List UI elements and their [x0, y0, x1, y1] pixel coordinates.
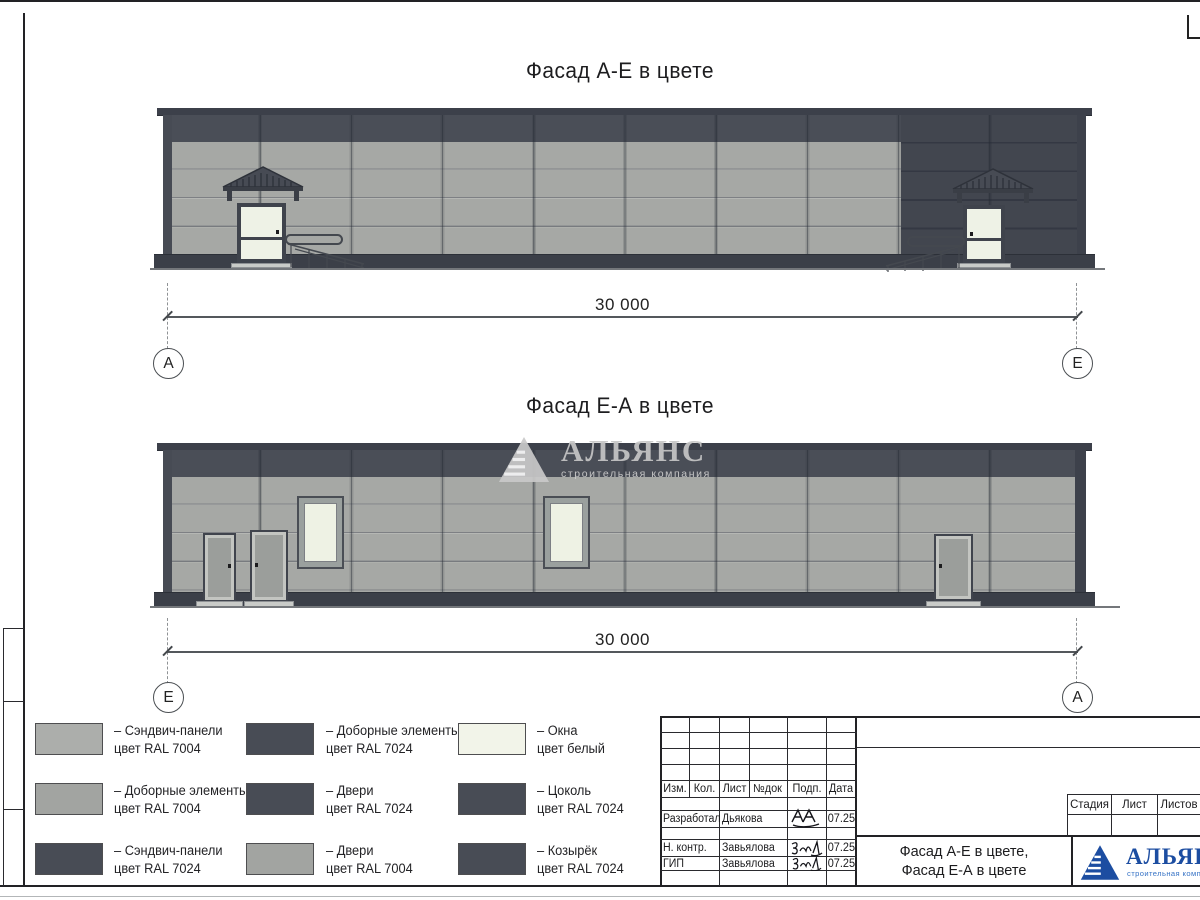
logo-pyramid-icon: [1080, 841, 1120, 884]
legend-label: – Доборные элементыцвет RAL 7024: [326, 722, 460, 757]
stage-col-list: Лист: [1113, 797, 1156, 811]
logo-name: АЛЬЯНС: [1126, 844, 1200, 870]
sign-role: Разработал: [663, 813, 721, 825]
stage-col-stadia: Стадия: [1069, 797, 1110, 811]
titleblock-line: [660, 716, 662, 886]
titleblock-line: [1067, 814, 1200, 815]
titleblock-line: [1067, 794, 1200, 795]
entrance-canopy-icon: [952, 168, 1034, 208]
right-corner-pilaster: [1075, 450, 1086, 592]
titleblock-line: [660, 716, 1200, 718]
legend-label: – Сэндвич-панелицвет RAL 7004: [114, 722, 223, 757]
legend-swatch: [458, 843, 526, 875]
change-col-izm: Изм.: [662, 783, 689, 795]
watermark-subtitle: строительная компания: [561, 468, 711, 480]
change-col-kol: Кол.: [691, 783, 719, 795]
ground-line: [150, 268, 1105, 270]
ground-line: [150, 606, 1120, 608]
stage-col-listov: Листов: [1159, 797, 1199, 811]
change-col-data: Дата: [828, 783, 855, 795]
titleblock-line: [1157, 794, 1158, 837]
change-col-podp: Подп.: [789, 783, 825, 795]
side-stamp-line: [3, 701, 24, 702]
sign-date: 07.25: [828, 813, 855, 825]
sheet-bottom-edge: [0, 896, 1200, 897]
right-corner-pilaster: [1077, 115, 1086, 254]
titleblock-line: [855, 835, 1200, 837]
ramp-railing-icon: [883, 236, 965, 272]
side-stamp-line: [3, 628, 4, 886]
legend-label: – Дверицвет RAL 7004: [326, 842, 413, 877]
titleblock-line: [1071, 835, 1073, 886]
axis-circle-a: А: [1062, 682, 1093, 713]
side-stamp-line: [3, 628, 24, 629]
service-door: [934, 534, 973, 601]
titleblock-line: [719, 716, 720, 886]
sign-role: ГИП: [663, 858, 684, 870]
axis-circle-e: Е: [153, 682, 184, 713]
legend-swatch: [246, 843, 314, 875]
titleblock-line: [1111, 794, 1112, 837]
sign-name: Дьякова: [722, 813, 762, 825]
entrance-door: [963, 205, 1005, 263]
axis-circle-e: Е: [1062, 348, 1093, 379]
signature-icon: [789, 806, 825, 828]
legend-swatch: [35, 843, 103, 875]
axis-circle-a: А: [153, 348, 184, 379]
left-corner-pilaster: [163, 450, 172, 592]
legend-swatch: [35, 783, 103, 815]
titleblock-line: [660, 839, 857, 840]
facade-ea-title: Фасад Е-А в цвете: [397, 393, 843, 419]
logo-subtitle: строительная компания: [1127, 869, 1200, 878]
service-door: [250, 530, 288, 602]
left-corner-pilaster: [163, 115, 172, 254]
window: [543, 496, 590, 569]
legend-swatch: [246, 783, 314, 815]
legend-swatch: [458, 783, 526, 815]
legend-label: – Доборные элементыцвет RAL 7004: [114, 782, 248, 817]
entrance-door: [237, 203, 286, 263]
signature-icon: [790, 840, 824, 856]
legend-label: – Сэндвич-панелицвет RAL 7024: [114, 842, 223, 877]
doc-title: Фасад А-Е в цвете, Фасад Е-А в цвете: [857, 838, 1071, 885]
titleblock-line: [660, 810, 857, 811]
ramp-railing-icon: [285, 234, 367, 270]
frame-bottom-line: [0, 885, 1200, 887]
titleblock-line: [857, 747, 1200, 748]
legend-label: – Цокольцвет RAL 7024: [537, 782, 624, 817]
side-stamp-line: [3, 809, 24, 810]
legend-swatch: [35, 723, 103, 755]
logo-watermark: АЛЬЯНС строительная компания: [497, 436, 711, 483]
sign-name: Завьялова: [722, 858, 775, 870]
titleblock-line: [1067, 794, 1068, 837]
watermark-name: АЛЬЯНС: [561, 436, 711, 466]
legend-label: – Козырёкцвет RAL 7024: [537, 842, 624, 877]
service-door: [203, 533, 236, 602]
building-facade-ae: [163, 108, 1086, 269]
dimension-line: [167, 316, 1078, 318]
dimension-value: 30 000: [167, 295, 1078, 315]
watermark-pyramid-icon: [497, 436, 551, 483]
legend-swatch: [458, 723, 526, 755]
legend-label: – Окнацвет белый: [537, 722, 605, 757]
legend-swatch: [246, 723, 314, 755]
titleblock-line: [660, 856, 857, 857]
change-col-ndok: №док: [749, 783, 786, 795]
legend-label: – Дверицвет RAL 7024: [326, 782, 413, 817]
dimension-value: 30 000: [167, 630, 1078, 650]
window: [297, 496, 344, 569]
frame-top-line: [0, 0, 1200, 2]
sign-date: 07.25: [828, 842, 855, 854]
change-col-list: Лист: [721, 783, 749, 795]
corner-stamp-box: [1187, 15, 1200, 39]
sign-date: 07.25: [828, 858, 855, 870]
titleblock-line: [787, 716, 788, 886]
facade-ae-title: Фасад А-Е в цвете: [397, 58, 843, 84]
frame-left-line: [23, 13, 25, 887]
signature-icon: [790, 856, 824, 871]
dimension-line: [167, 651, 1078, 653]
sign-role: Н. контр.: [663, 842, 707, 854]
entrance-canopy-icon: [222, 166, 304, 206]
titleblock-line: [660, 827, 857, 828]
titleblock-line: [660, 870, 857, 871]
sign-name: Завьялова: [722, 842, 775, 854]
drawing-sheet: Фасад А-Е в цвете: [0, 0, 1200, 900]
